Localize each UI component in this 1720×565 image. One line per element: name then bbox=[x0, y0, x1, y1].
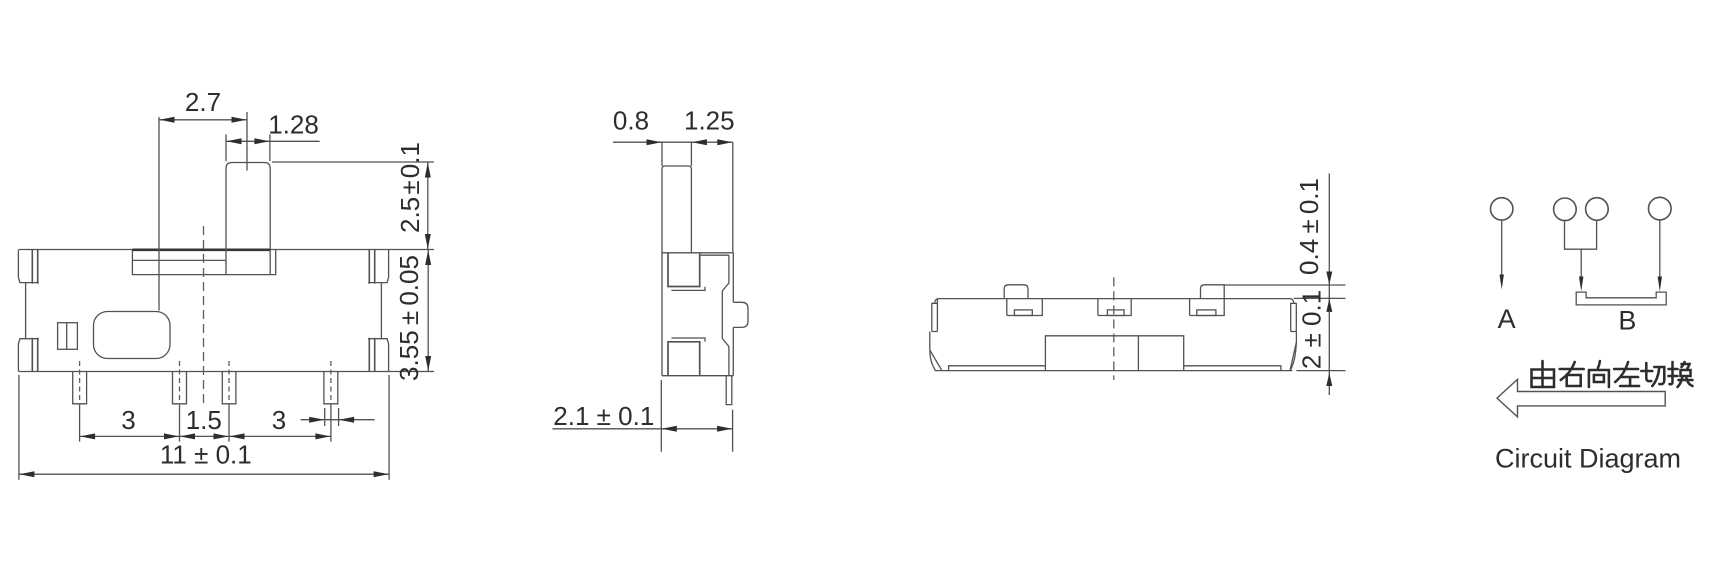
svg-text:B: B bbox=[1618, 306, 1636, 336]
svg-text:2.7: 2.7 bbox=[185, 87, 221, 117]
svg-text:2 ± 0.1: 2 ± 0.1 bbox=[1297, 290, 1327, 369]
svg-text:2.1 ± 0.1: 2.1 ± 0.1 bbox=[553, 401, 654, 431]
svg-text:2.5 ± 0.1: 2.5 ± 0.1 bbox=[395, 142, 425, 233]
svg-text:3: 3 bbox=[272, 405, 286, 435]
svg-text:0.8: 0.8 bbox=[613, 106, 649, 136]
svg-text:0.4 ± 0.1: 0.4 ± 0.1 bbox=[1294, 178, 1324, 275]
svg-text:A: A bbox=[1498, 304, 1516, 334]
svg-text:3.55 ± 0.05: 3.55 ± 0.05 bbox=[394, 255, 424, 381]
svg-text:11 ± 0.1: 11 ± 0.1 bbox=[160, 440, 252, 470]
svg-text:Circuit Diagram: Circuit Diagram bbox=[1495, 444, 1681, 474]
svg-text:1.25: 1.25 bbox=[684, 106, 735, 136]
svg-text:1.5: 1.5 bbox=[186, 405, 222, 435]
svg-text:3: 3 bbox=[121, 405, 135, 435]
svg-text:1.28: 1.28 bbox=[268, 110, 319, 140]
